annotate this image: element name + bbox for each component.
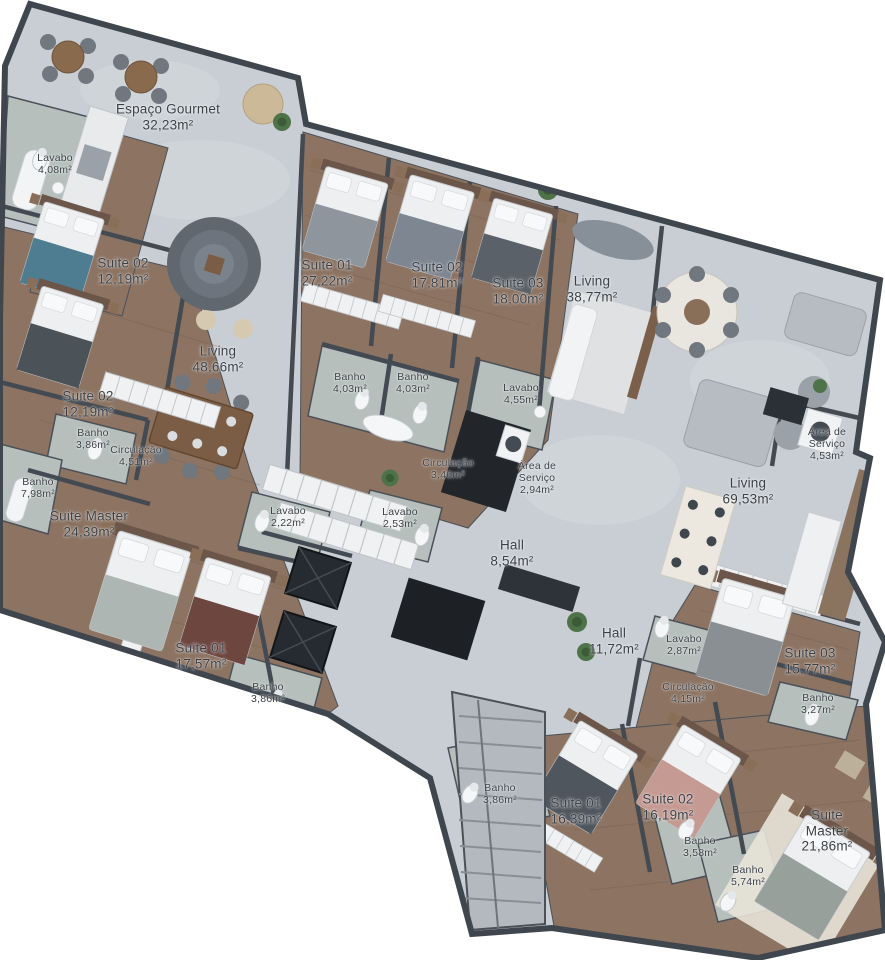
plant-icon xyxy=(273,113,291,131)
floor-plan: Espaço Gourmet32,23m²Lavabo4,08m²Suite 0… xyxy=(0,0,885,960)
plant-icon xyxy=(577,643,595,661)
floor-plan-canvas xyxy=(0,0,885,960)
plant-icon xyxy=(567,612,587,632)
plant-icon xyxy=(382,470,399,487)
round-table-icon xyxy=(125,61,157,93)
round-table-icon xyxy=(52,41,84,73)
sink-icon xyxy=(534,406,546,418)
stool-icon xyxy=(233,319,253,339)
sink-icon xyxy=(52,182,64,194)
stool-icon xyxy=(196,310,216,330)
plant-icon xyxy=(838,218,858,238)
